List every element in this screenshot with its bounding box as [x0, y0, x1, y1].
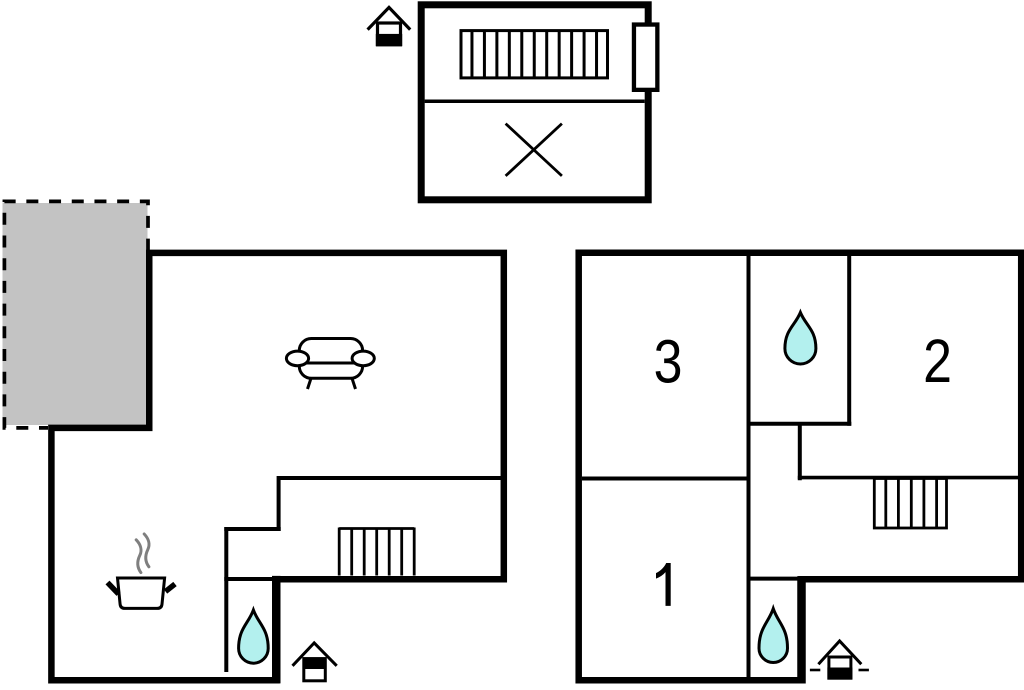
- svg-text:3: 3: [654, 328, 683, 396]
- svg-text:2: 2: [923, 327, 952, 395]
